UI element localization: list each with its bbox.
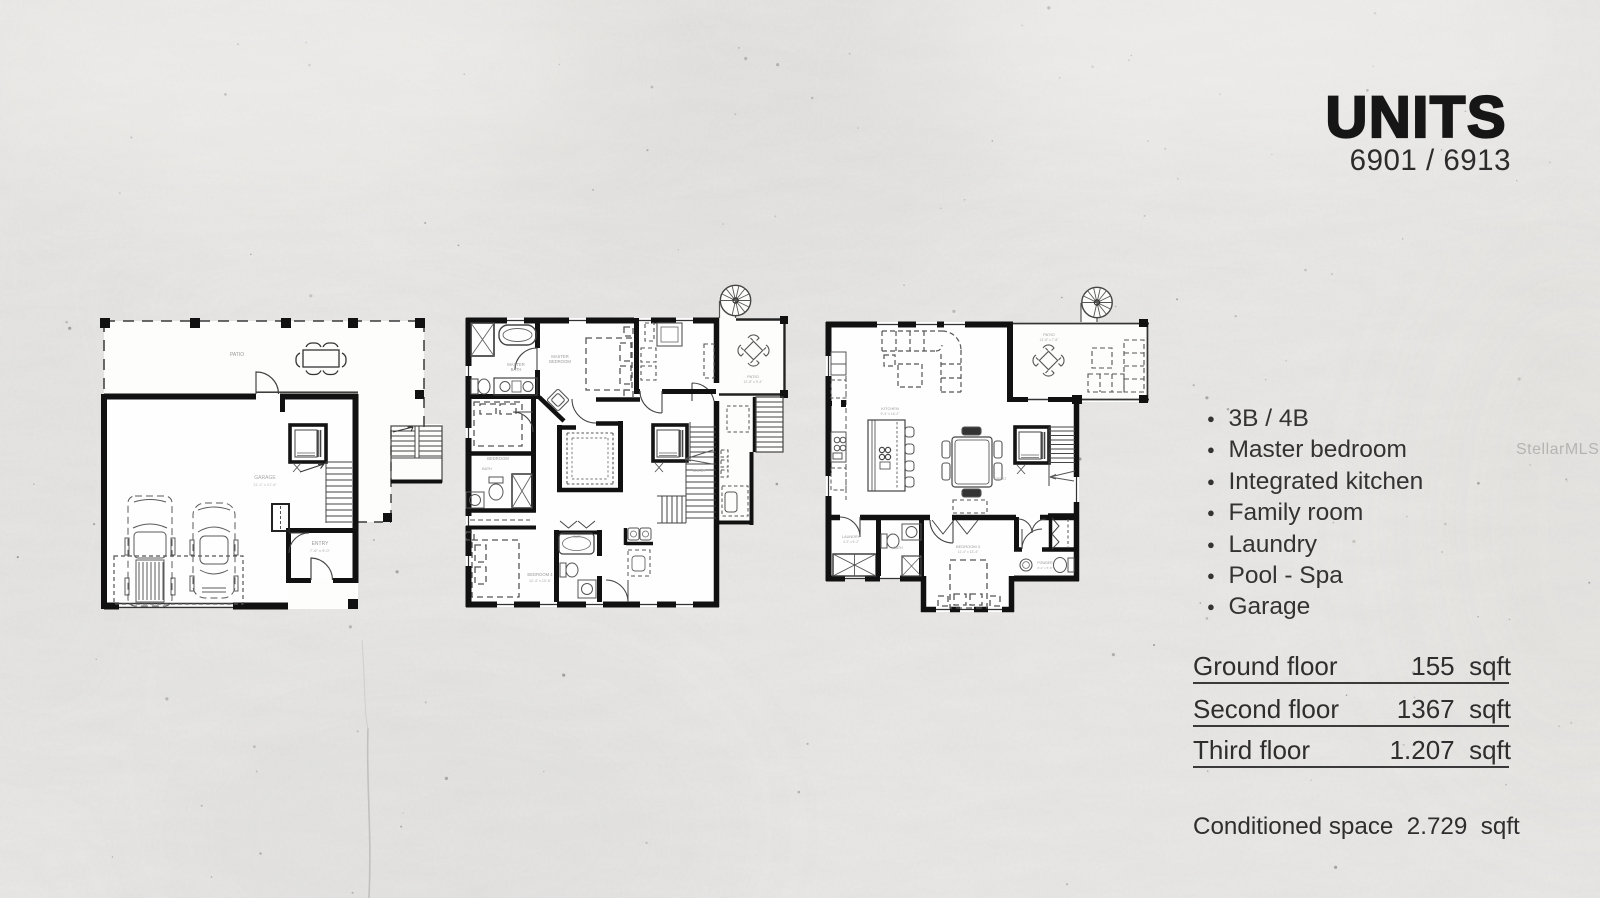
svg-text:ENTRY: ENTRY bbox=[312, 541, 330, 547]
svg-text:21'-4" x 21'-6": 21'-4" x 21'-6" bbox=[253, 483, 277, 487]
svg-text:9'-4" x 16'-2": 9'-4" x 16'-2" bbox=[881, 412, 901, 416]
svg-text:GREAT: GREAT bbox=[693, 469, 706, 473]
svg-text:13'-8" x 7'-8": 13'-8" x 7'-8" bbox=[1040, 338, 1060, 342]
svg-text:11'-4" x 13'-4": 11'-4" x 13'-4" bbox=[958, 550, 979, 554]
svg-text:GARAGE: GARAGE bbox=[254, 475, 276, 481]
svg-text:BEDROOM 3: BEDROOM 3 bbox=[956, 544, 981, 549]
svg-text:4'-2" x 6'-2": 4'-2" x 6'-2" bbox=[843, 540, 859, 544]
svg-text:BATH: BATH bbox=[511, 367, 522, 372]
svg-text:PATIO: PATIO bbox=[230, 352, 244, 358]
svg-text:LAUNDRY: LAUNDRY bbox=[842, 535, 861, 539]
svg-text:BATH: BATH bbox=[573, 535, 583, 539]
svg-text:GREAT: GREAT bbox=[994, 477, 1007, 481]
svg-text:POWDER: POWDER bbox=[1037, 561, 1053, 565]
svg-text:BEDROOM 4: BEDROOM 4 bbox=[527, 572, 553, 577]
svg-text:BATH: BATH bbox=[482, 467, 492, 471]
svg-text:12'-4" x 10'-6": 12'-4" x 10'-6" bbox=[529, 579, 552, 583]
svg-text:BATH: BATH bbox=[893, 546, 903, 550]
svg-text:BEDROOM: BEDROOM bbox=[487, 456, 509, 461]
svg-text:7'-6" x 9'-0": 7'-6" x 9'-0" bbox=[310, 548, 331, 553]
svg-text:6'-2" x 5'-6": 6'-2" x 5'-6" bbox=[1037, 566, 1052, 570]
svg-text:PATIO: PATIO bbox=[1043, 332, 1054, 337]
svg-text:BEDROOM: BEDROOM bbox=[549, 359, 571, 364]
svg-text:KITCHEN: KITCHEN bbox=[881, 406, 899, 411]
svg-text:PATIO: PATIO bbox=[747, 374, 758, 379]
svg-text:12'-8" x 9'-4": 12'-8" x 9'-4" bbox=[744, 380, 764, 384]
